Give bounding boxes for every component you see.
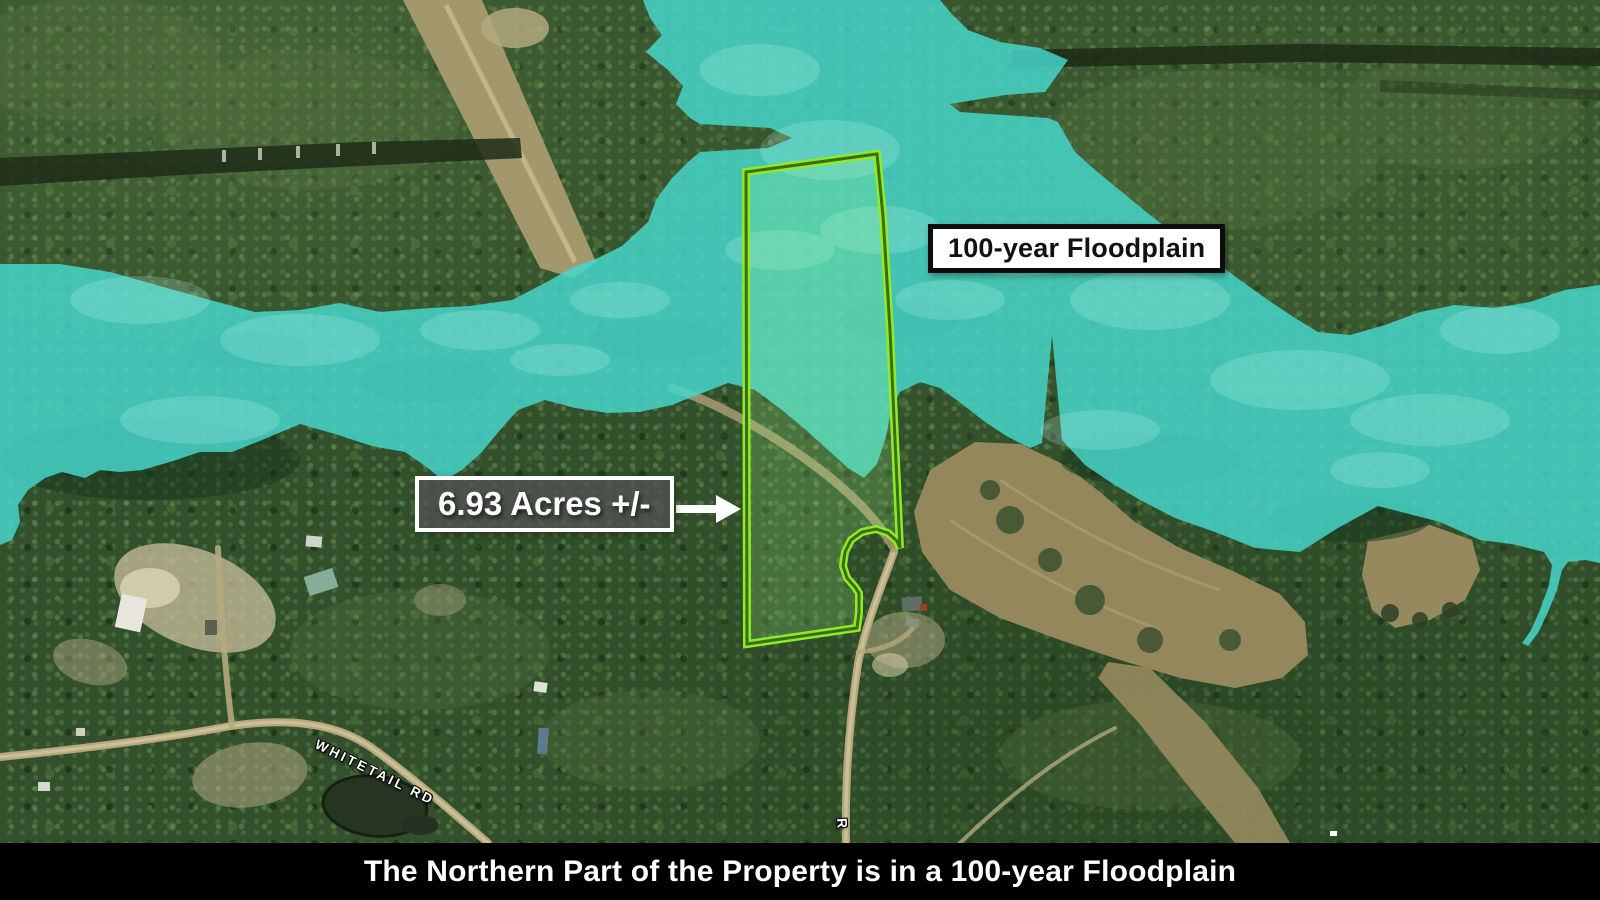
floodplain-label: 100-year Floodplain: [928, 224, 1225, 273]
acreage-label: 6.93 Acres +/-: [415, 476, 674, 532]
satellite-map: 100-year Floodplain 6.93 Acres +/- WHITE…: [0, 0, 1600, 843]
caption-bar: The Northern Part of the Property is in …: [0, 843, 1600, 900]
property-flyer: 100-year Floodplain 6.93 Acres +/- WHITE…: [0, 0, 1600, 900]
road-label-r: R: [834, 817, 851, 828]
caption-text: The Northern Part of the Property is in …: [364, 855, 1236, 889]
property-boundary: [746, 154, 900, 644]
map-overlays: [0, 0, 1600, 843]
acreage-arrow-icon: [676, 495, 741, 523]
